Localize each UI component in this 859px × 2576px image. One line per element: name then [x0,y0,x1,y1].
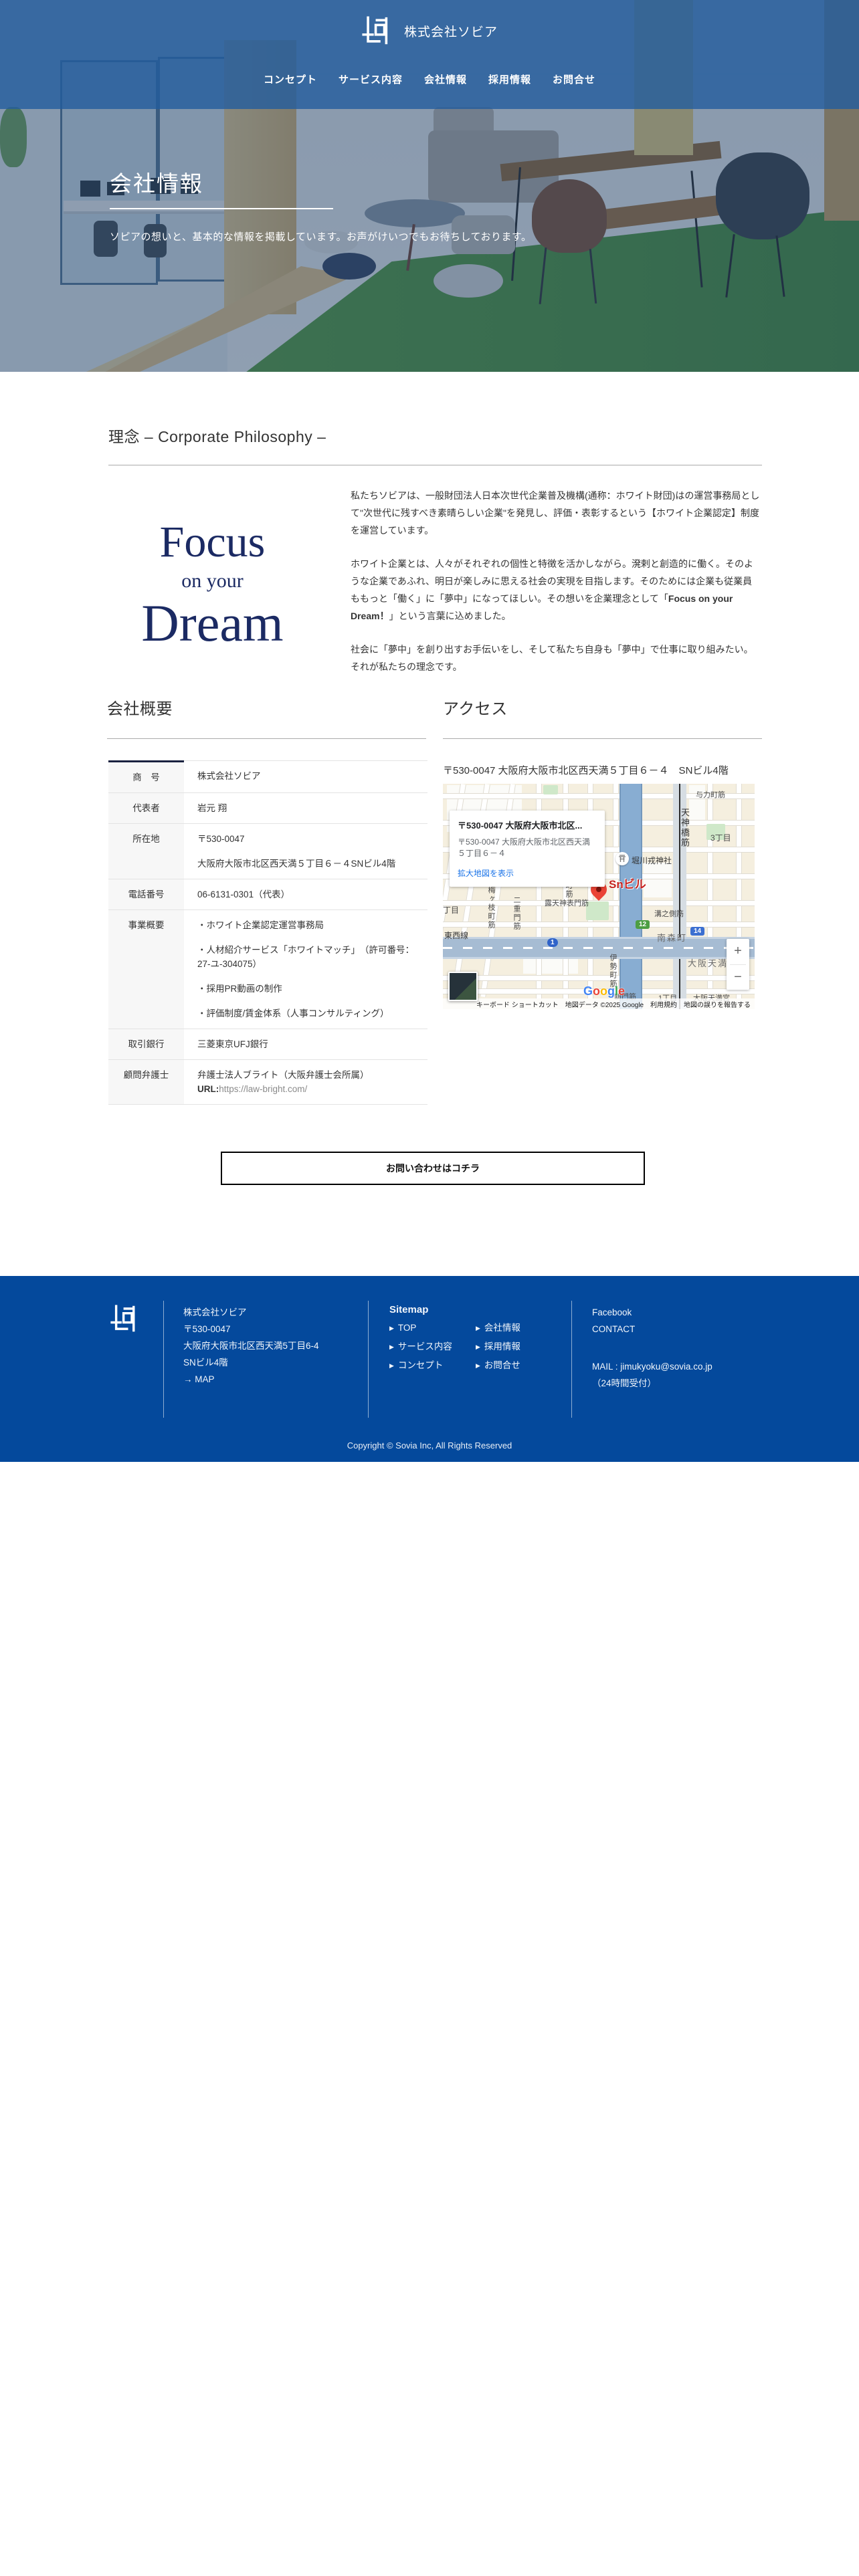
google-letter: e [618,984,625,998]
footer-divider [163,1301,164,1418]
table-row: 事業概要 ・ホワイト企業認定運営事務局 ・人材紹介サービス「ホワイトマッチ」 （… [108,910,427,1029]
section-divider [443,738,762,739]
philosophy-text: 私たちソビアは、一般財団法人日本次世代企業普及機構(通称：ホワイト財団)はの運営… [351,487,760,691]
url-label: URL: [197,1084,219,1094]
map-river-road [619,784,642,1009]
zoom-out-button[interactable]: − [727,965,749,990]
footer-logo[interactable] [110,1302,139,1337]
nav-contact[interactable]: お問合せ [553,72,595,86]
company-heading: 会社概要 [107,695,173,719]
map-label-minamimorimachi: 南森町 [657,931,687,944]
map-label-osakatemma: 大阪天満 [688,956,728,969]
row-label: 電話番号 [108,879,184,909]
footer-mail[interactable]: MAIL : jimukyoku@sovia.co.jp [592,1358,712,1375]
contact-cta-button[interactable]: お問い合わせはコチラ [221,1152,645,1185]
access-address: 〒530-0047 大阪府大阪市北区西天満５丁目６－４ SNビル4階 [443,763,761,777]
map-label-nijumon: 二重門筋 [511,896,522,931]
map-attribution-bar: キーボード ショートカット 地図データ ©2025 Google 利用規約 地図… [443,998,755,1009]
table-row: 代表者 岩元 翔 [108,793,427,824]
route-badge-14: 14 [690,927,704,936]
hero-subtitle: ソピアの想いと、基本的な情報を掲載しています。お声がけいつでもお待ちしております… [110,229,532,243]
map-card-title: 〒530-0047 大阪府大阪市北区... [458,819,597,831]
row-label: 取引銀行 [108,1029,184,1059]
keyboard-shortcuts-link[interactable]: キーボード ショートカット [476,999,559,1009]
sitemap-link-label: 会社情報 [484,1323,520,1333]
google-logo[interactable]: Google [583,984,625,998]
map-block [644,863,672,897]
table-row: 所在地 〒530-0047 大阪府大阪市北区西天満５丁目６－４SNビル4階 [108,824,427,879]
sitemap-link-company[interactable]: ▶会社情報 [476,1322,520,1335]
row-value-line: ・評価制度/賃金体系（人事コンサルティング） [197,1006,423,1021]
table-row: 顧問弁護士 弁護士法人ブライト（大阪弁護士会所属） URL:https://la… [108,1060,427,1105]
footer-address-line2: SNビル4階 [183,1354,319,1371]
sitemap-link-recruit[interactable]: ▶採用情報 [476,1341,520,1354]
google-letter: o [600,984,607,998]
triangle-icon: ▶ [476,1362,480,1369]
access-heading: アクセス [443,695,508,719]
sitemap-title: Sitemap [389,1304,520,1315]
row-label: 代表者 [108,793,184,823]
triangle-icon: ▶ [389,1344,394,1350]
section-divider [107,738,426,739]
map-data-label: 地図データ ©2025 Google [565,999,644,1009]
row-value-line: ・採用PR動画の制作 [197,982,423,996]
shrine-icon [615,852,629,865]
sovia-logo-icon [361,13,392,48]
map-pin-label: Snビル [609,875,646,891]
row-value-line: ・人材紹介サービス「ホワイトマッチ」 （許可番号：27-ユ-304075） [197,943,423,971]
footer-contact-column: Facebook CONTACT MAIL : jimukyoku@sovia.… [592,1304,712,1392]
company-table: 商 号 株式会社ソビア 代表者 岩元 翔 所在地 〒530-0047 大阪府大阪… [108,760,427,1105]
row-value: 岩元 翔 [184,793,427,823]
row-value: 三菱東京UFJ銀行 [184,1029,427,1059]
map-enlarge-link[interactable]: 拡大地図を表示 [458,867,597,879]
nav-company[interactable]: 会社情報 [424,72,467,86]
section-divider [108,465,762,465]
copyright: Copyright © Sovia Inc, All Rights Reserv… [0,1440,859,1451]
slogan-dream: Dream [117,594,308,653]
google-letter: g [607,984,615,998]
row-value-line: ・ホワイト企業認定運営事務局 [197,918,423,932]
row-label: 商 号 [108,760,184,792]
sitemap-link-label: TOP [398,1323,417,1333]
google-letter: G [583,984,593,998]
google-letter: o [593,984,600,998]
map-label-tozaisen: 東西線 [444,930,468,941]
slogan-on-your: on your [117,568,308,594]
philosophy-paragraph-1: 私たちソビアは、一般財団法人日本次世代企業普及機構(通称：ホワイト財団)はの運営… [351,487,760,539]
philosophy-paragraph-2: ホワイト企業とは、人々がそれぞれの個性と特徴を活かしながら。溌剌と創造的に働く。… [351,555,760,625]
satellite-view-thumbnail[interactable] [448,972,478,1001]
sitemap-link-label: コンセプト [398,1360,444,1370]
nav-recruit[interactable]: 採用情報 [488,72,531,86]
map-label-sanchome: 3丁目 [710,832,731,843]
map-label-tenjinbashisuji: 天神橋筋 [678,808,691,848]
row-label: 顧問弁護士 [108,1060,184,1104]
row-value-line: URL:https://law-bright.com/ [197,1082,423,1096]
company-name: 株式会社ソビア [404,22,498,40]
philosophy-paragraph-3: 社会に「夢中」を創り出すお手伝いをし、そして私たち自身も「夢中」で仕事に取り組み… [351,641,760,675]
row-value: 〒530-0047 大阪府大阪市北区西天満５丁目６－４SNビル4階 [184,824,427,879]
sovia-logo-icon [110,1302,139,1335]
route-badge-12: 12 [636,920,650,929]
sitemap-link-contact[interactable]: ▶お問合せ [476,1360,520,1372]
route-badge-1: 1 [547,938,558,947]
map-zoom-control: + − [727,939,749,990]
lawyer-url-link[interactable]: https://law-bright.com/ [219,1084,307,1094]
row-value-line: 〒530-0047 [197,832,423,846]
sitemap-grid: ▶TOP ▶会社情報 ▶サービス内容 ▶採用情報 ▶コンセプト ▶お問合せ [389,1322,520,1372]
map-label-rotenjin: 露天神表門筋 [545,897,589,908]
google-map-embed[interactable]: 与力町筋 天神橋筋 3丁目 堀川戎神社 木幡町筋 露天神表門筋 西梅ヶ枝町筋 二… [443,784,755,1009]
map-info-card: 〒530-0047 大阪府大阪市北区... 〒530-0047 大阪府大阪市北区… [450,811,605,887]
footer-facebook-link[interactable]: Facebook [592,1304,712,1321]
hero-section: 株式会社ソビア コンセプト サービス内容 会社情報 採用情報 お問合せ 会社情報… [0,0,859,372]
map-park [586,901,609,920]
sitemap-link-services[interactable]: ▶サービス内容 [389,1341,476,1354]
triangle-icon: ▶ [476,1325,480,1331]
zoom-in-button[interactable]: + [727,939,749,964]
footer-divider [571,1301,572,1418]
map-label-shrine: 堀川戎神社 [632,855,672,866]
row-value-line: 弁護士法人ブライト（大阪弁護士会所属） [197,1068,423,1082]
row-value: 06-6131-0301（代表） [184,879,427,909]
triangle-icon: ▶ [389,1362,394,1369]
page: 株式会社ソビア コンセプト サービス内容 会社情報 採用情報 お問合せ 会社情報… [0,0,859,2576]
triangle-icon: ▶ [389,1325,394,1331]
footer-map-link[interactable]: → MAP [183,1371,319,1388]
row-value: 弁護士法人ブライト（大阪弁護士会所属） URL:https://law-brig… [184,1060,427,1104]
footer-contact-link[interactable]: CONTACT [592,1321,712,1337]
nav-concept[interactable]: コンセプト [264,72,317,86]
terms-link[interactable]: 利用規約 [650,999,677,1009]
main-nav: コンセプト サービス内容 会社情報 採用情報 お問合せ [0,72,859,86]
site-brand[interactable]: 株式会社ソビア [0,13,859,48]
row-value-line: 岩元 翔 [197,801,423,815]
map-label-yoriki: 与力町筋 [696,789,725,800]
slogan-block: Focus on your Dream [117,516,308,653]
map-road [443,975,755,981]
sitemap-link-label: 採用情報 [484,1341,520,1352]
row-value: ・ホワイト企業認定運営事務局 ・人材紹介サービス「ホワイトマッチ」 （許可番号：… [184,910,427,1029]
sitemap-link-concept[interactable]: ▶コンセプト [389,1360,476,1372]
row-label: 事業概要 [108,910,184,1029]
footer-company-name: 株式会社ソビア [183,1304,319,1321]
sitemap-link-label: お問合せ [484,1360,520,1370]
footer-address-line1: 大阪府大阪市北区西天満5丁目6-4 [183,1337,319,1354]
triangle-icon: ▶ [476,1344,480,1350]
footer-address-column: 株式会社ソビア 〒530-0047 大阪府大阪市北区西天満5丁目6-4 SNビル… [183,1304,319,1388]
footer-zip: 〒530-0047 [183,1321,319,1337]
nav-services[interactable]: サービス内容 [339,72,403,86]
page-title: 会社情報 [110,166,203,198]
row-label: 所在地 [108,824,184,879]
row-value-line: 大阪府大阪市北区西天満５丁目６－４SNビル4階 [197,857,423,871]
map-label-isemachisuji: 伊勢町筋 [607,954,618,988]
map-park [543,785,558,794]
sitemap-link-label: サービス内容 [398,1341,452,1352]
map-label-mizonosoba: 溝之側筋 [654,908,684,919]
hero-underline [110,208,333,209]
slogan-focus: Focus [117,516,308,568]
sitemap-link-top[interactable]: ▶TOP [389,1322,476,1335]
footer-divider [368,1301,369,1418]
table-row: 商 号 株式会社ソビア [108,760,427,793]
table-row: 電話番号 06-6131-0301（代表） [108,879,427,910]
footer-sitemap-column: Sitemap ▶TOP ▶会社情報 ▶サービス内容 ▶採用情報 ▶コンセプト … [389,1304,520,1372]
report-error-link[interactable]: 地図の誤りを報告する [684,999,751,1009]
footer: 株式会社ソビア 〒530-0047 大阪府大阪市北区西天満5丁目6-4 SNビル… [0,1276,859,1462]
footer-hours: （24時間受付） [592,1375,712,1392]
row-value-line: 株式会社ソビア [197,769,423,783]
map-label-chome: 丁目 [443,904,459,916]
row-value-line: 三菱東京UFJ銀行 [197,1037,423,1051]
philosophy-heading: 理念 – Corporate Philosophy – [108,424,326,447]
philosophy-paragraph-2-post: 」という言葉に込めました。 [389,611,511,621]
map-card-address: 〒530-0047 大阪府大阪市北区西天満５丁目６－４ [458,837,597,859]
row-value-line: 06-6131-0301（代表） [197,887,423,901]
table-row: 取引銀行 三菱東京UFJ銀行 [108,1029,427,1060]
row-value: 株式会社ソビア [184,760,427,792]
